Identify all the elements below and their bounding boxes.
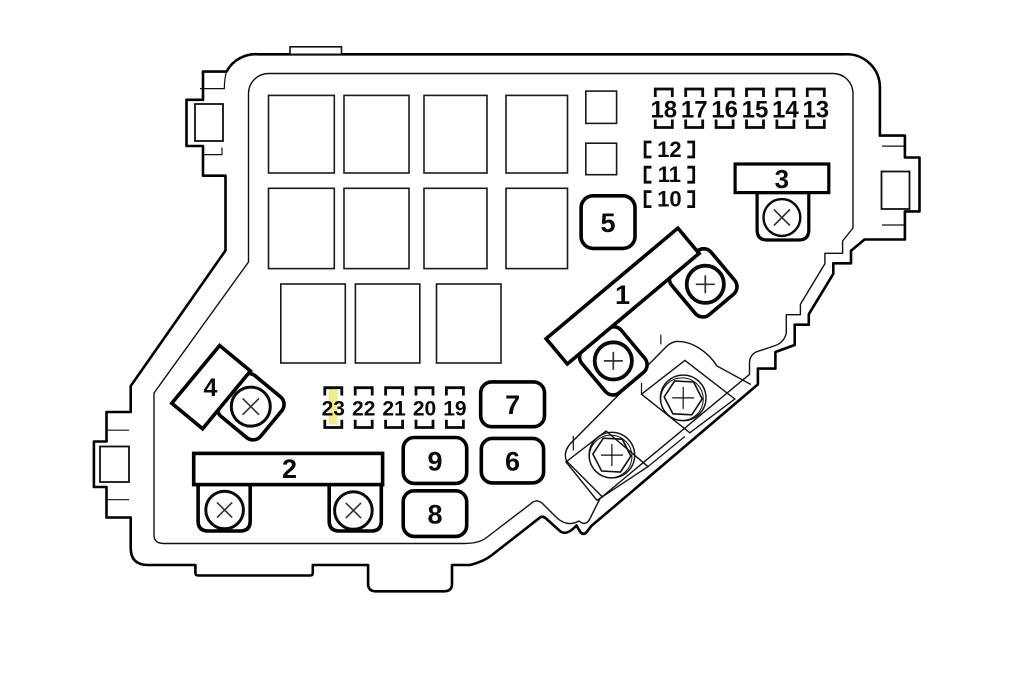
svg-text:5: 5 [600, 208, 615, 238]
svg-text:17: 17 [681, 97, 708, 124]
svg-text:11: 11 [658, 162, 681, 187]
svg-text:22: 22 [352, 397, 375, 420]
svg-text:23: 23 [322, 397, 345, 420]
svg-text:1: 1 [615, 280, 630, 310]
svg-text:19: 19 [443, 397, 466, 420]
svg-text:10: 10 [657, 187, 681, 212]
svg-text:4: 4 [204, 374, 218, 402]
svg-text:2: 2 [282, 454, 297, 484]
svg-text:18: 18 [650, 97, 677, 124]
svg-text:14: 14 [772, 97, 799, 124]
svg-text:20: 20 [413, 397, 436, 420]
svg-text:9: 9 [427, 447, 442, 477]
svg-text:21: 21 [382, 397, 406, 420]
svg-text:12: 12 [657, 137, 681, 162]
svg-text:13: 13 [802, 97, 829, 124]
svg-text:16: 16 [711, 97, 738, 124]
svg-text:3: 3 [775, 164, 789, 194]
svg-text:8: 8 [427, 500, 442, 530]
svg-text:15: 15 [742, 97, 769, 124]
svg-text:7: 7 [505, 390, 520, 420]
svg-text:6: 6 [505, 447, 520, 477]
